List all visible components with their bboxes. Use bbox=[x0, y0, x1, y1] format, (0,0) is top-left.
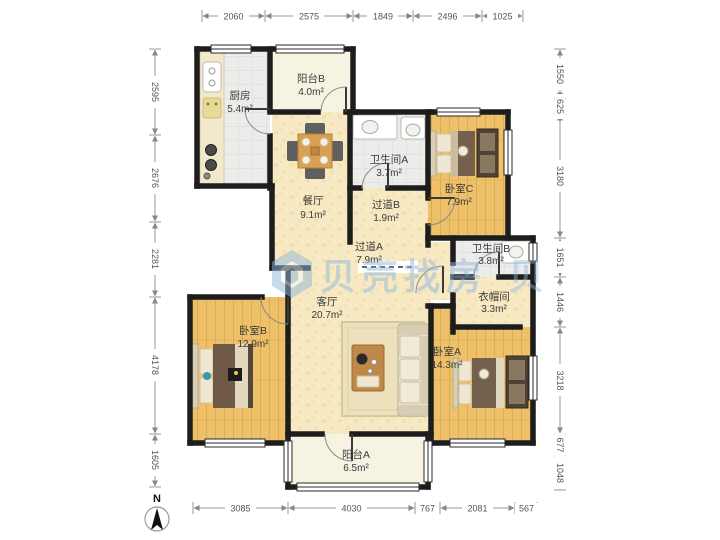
balcony-a-window-left bbox=[284, 441, 292, 482]
dim-right-1: 1550 bbox=[555, 64, 565, 84]
basin-icon bbox=[362, 121, 378, 134]
dining-label: 餐厅 bbox=[303, 194, 324, 207]
dim-right-3: 3180 bbox=[555, 166, 565, 186]
bedroom-c-window-top bbox=[437, 108, 480, 116]
floorplan-page: 厨房 5.4m² 阳台B 4.0m² 餐厅 9.1m² 卫生间A 3.7m² 过… bbox=[0, 0, 720, 540]
bedroom-a-window-bottom bbox=[450, 439, 505, 447]
bathroom-a-area: 3.7m² bbox=[376, 168, 402, 179]
kitchen-counter bbox=[200, 51, 224, 184]
floorplan-canvas: 厨房 5.4m² 阳台B 4.0m² 餐厅 9.1m² 卫生间A 3.7m² 过… bbox=[0, 0, 720, 540]
living-room-set bbox=[342, 322, 430, 416]
bathroom-a-label: 卫生间A bbox=[370, 153, 409, 166]
dim-bottom-4: 2081 bbox=[467, 504, 487, 514]
toilet-icon bbox=[406, 124, 420, 136]
balcony-b-label: 阳台B bbox=[297, 72, 325, 85]
dim-right-7: 677 bbox=[555, 437, 565, 452]
dim-right-8: 1048 bbox=[555, 463, 565, 483]
bedroom-c-area: 7.9m² bbox=[446, 197, 472, 208]
dim-top-1: 2060 bbox=[223, 12, 243, 22]
dim-left-3: 2281 bbox=[150, 249, 160, 269]
compass-north-label: N bbox=[153, 493, 161, 505]
dim-top-3: 1849 bbox=[373, 12, 393, 22]
balcony-b-window bbox=[276, 45, 344, 53]
corridor-a-label: 过道A bbox=[355, 240, 383, 253]
corridor-b-label: 过道B bbox=[372, 198, 400, 211]
watermark-text: 贝壳找房 bbox=[320, 256, 488, 297]
dim-right-4: 1651 bbox=[555, 247, 565, 267]
balcony-a-label: 阳台A bbox=[342, 448, 370, 461]
dim-bottom-2: 4030 bbox=[341, 504, 361, 514]
balcony-b-area: 4.0m² bbox=[298, 87, 324, 98]
dim-right-6: 3218 bbox=[555, 370, 565, 390]
living-area: 20.7m² bbox=[311, 310, 343, 321]
bathroom-a-fixtures bbox=[353, 115, 425, 139]
dim-left-1: 2595 bbox=[150, 82, 160, 102]
stove-icon bbox=[206, 145, 217, 156]
balcony-a-area: 6.5m² bbox=[343, 463, 369, 474]
bedroom-b-area: 12.9m² bbox=[237, 339, 269, 350]
balcony-a-window-right bbox=[424, 441, 432, 482]
dim-top-5: 1025 bbox=[492, 12, 512, 22]
kitchen-area: 5.4m² bbox=[227, 104, 253, 115]
dim-left-2: 2676 bbox=[150, 168, 160, 188]
dim-ticks-top bbox=[202, 10, 523, 22]
bedroom-a-area: 14.3m² bbox=[431, 360, 463, 371]
dim-left-5: 1605 bbox=[150, 450, 160, 470]
sofa bbox=[398, 324, 430, 416]
bedroom-b-label: 卧室B bbox=[239, 324, 267, 337]
closet-area: 3.3m² bbox=[481, 304, 507, 315]
dim-bottom-1: 3085 bbox=[230, 504, 250, 514]
kitchen-label: 厨房 bbox=[230, 89, 251, 102]
dim-bottom-5: 567 bbox=[519, 504, 534, 514]
bedroom-a-window-right bbox=[529, 356, 537, 400]
bedroom-b-window bbox=[205, 439, 265, 447]
compass: N bbox=[145, 493, 169, 531]
dim-left-4: 4178 bbox=[150, 355, 160, 375]
watermark-text-partial: 贝 bbox=[508, 256, 550, 297]
dim-bottom-3: 767 bbox=[420, 504, 435, 514]
dim-right-2: 625 bbox=[555, 99, 565, 114]
bedroom-c-window-right bbox=[504, 130, 512, 175]
bedroom-c-label: 卧室C bbox=[445, 182, 474, 195]
dining-area: 9.1m² bbox=[300, 210, 326, 221]
dim-top-2: 2575 bbox=[299, 12, 319, 22]
kitchen-window bbox=[211, 45, 251, 53]
dim-right-5: 1446 bbox=[555, 292, 565, 312]
dim-top-4: 2496 bbox=[437, 12, 457, 22]
bathroom-b-label: 卫生间B bbox=[472, 242, 511, 255]
corridor-b-area: 1.9m² bbox=[373, 213, 399, 224]
balcony-a-window-bottom bbox=[297, 483, 419, 491]
bedroom-a-label: 卧室A bbox=[433, 345, 461, 358]
